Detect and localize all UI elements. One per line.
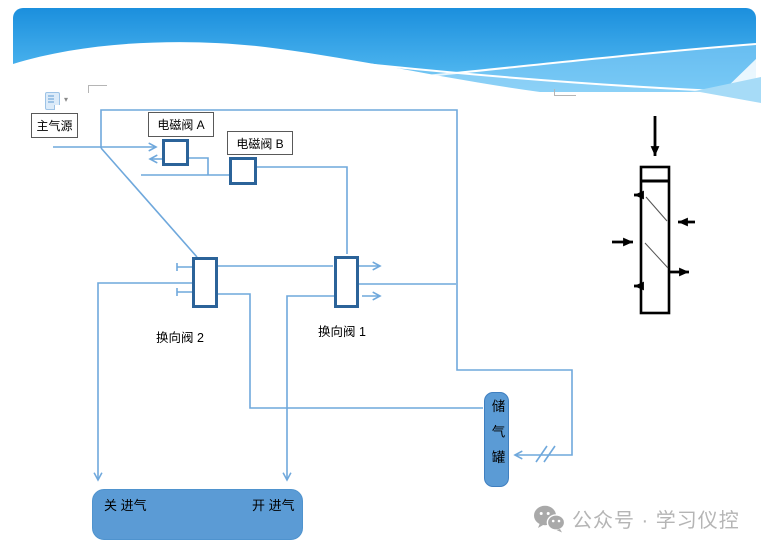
watermark: 公众号 · 学习仪控: [533, 504, 740, 533]
pipe-solenoid-b-to-valve1: [257, 167, 347, 254]
pipe-break-symbol: [536, 446, 555, 462]
solenoid-valve-b-label: 电磁阀 B: [236, 135, 283, 152]
diagram-connector-layer: [0, 0, 761, 551]
open-intake-label: 开 进气: [252, 495, 295, 514]
watermark-text: 公众号 · 学习仪控: [572, 504, 740, 533]
air-tank: 储气罐: [484, 392, 509, 487]
reversing-valve-2-label: 换向阀 2: [156, 327, 204, 346]
solenoid-valve-a-box: 电磁阀 A: [148, 112, 214, 137]
solenoid-valve-b-box: 电磁阀 B: [227, 131, 293, 155]
pipe-solenoid-a-out: [189, 158, 208, 175]
pipe-valve2-stub-bottom: [177, 288, 192, 296]
intake-status-box: 关 进气 开 进气: [92, 489, 303, 540]
pipe-valve2-to-tank: [218, 294, 483, 408]
close-intake-label: 关 进气: [104, 495, 147, 514]
reversing-valve-1-label: 换向阀 1: [318, 321, 366, 340]
reversing-valve-2-symbol: [192, 257, 218, 308]
main-air-source-box: 主气源: [31, 113, 78, 138]
cylinder-symbol: [612, 116, 695, 313]
reversing-valve-1-symbol: [334, 256, 359, 308]
solenoid-valve-a-symbol: [162, 139, 189, 166]
pipe-valve2-to-close-intake: [98, 283, 192, 480]
main-air-source-label: 主气源: [36, 117, 72, 134]
slide-canvas: ▾: [0, 0, 761, 551]
wechat-icon: [533, 504, 565, 533]
solenoid-valve-a-label: 电磁阀 A: [157, 116, 204, 133]
solenoid-valve-b-symbol: [229, 157, 257, 185]
air-tank-label: 储气罐: [487, 399, 507, 486]
pipe-valve2-stub-top: [177, 263, 192, 271]
